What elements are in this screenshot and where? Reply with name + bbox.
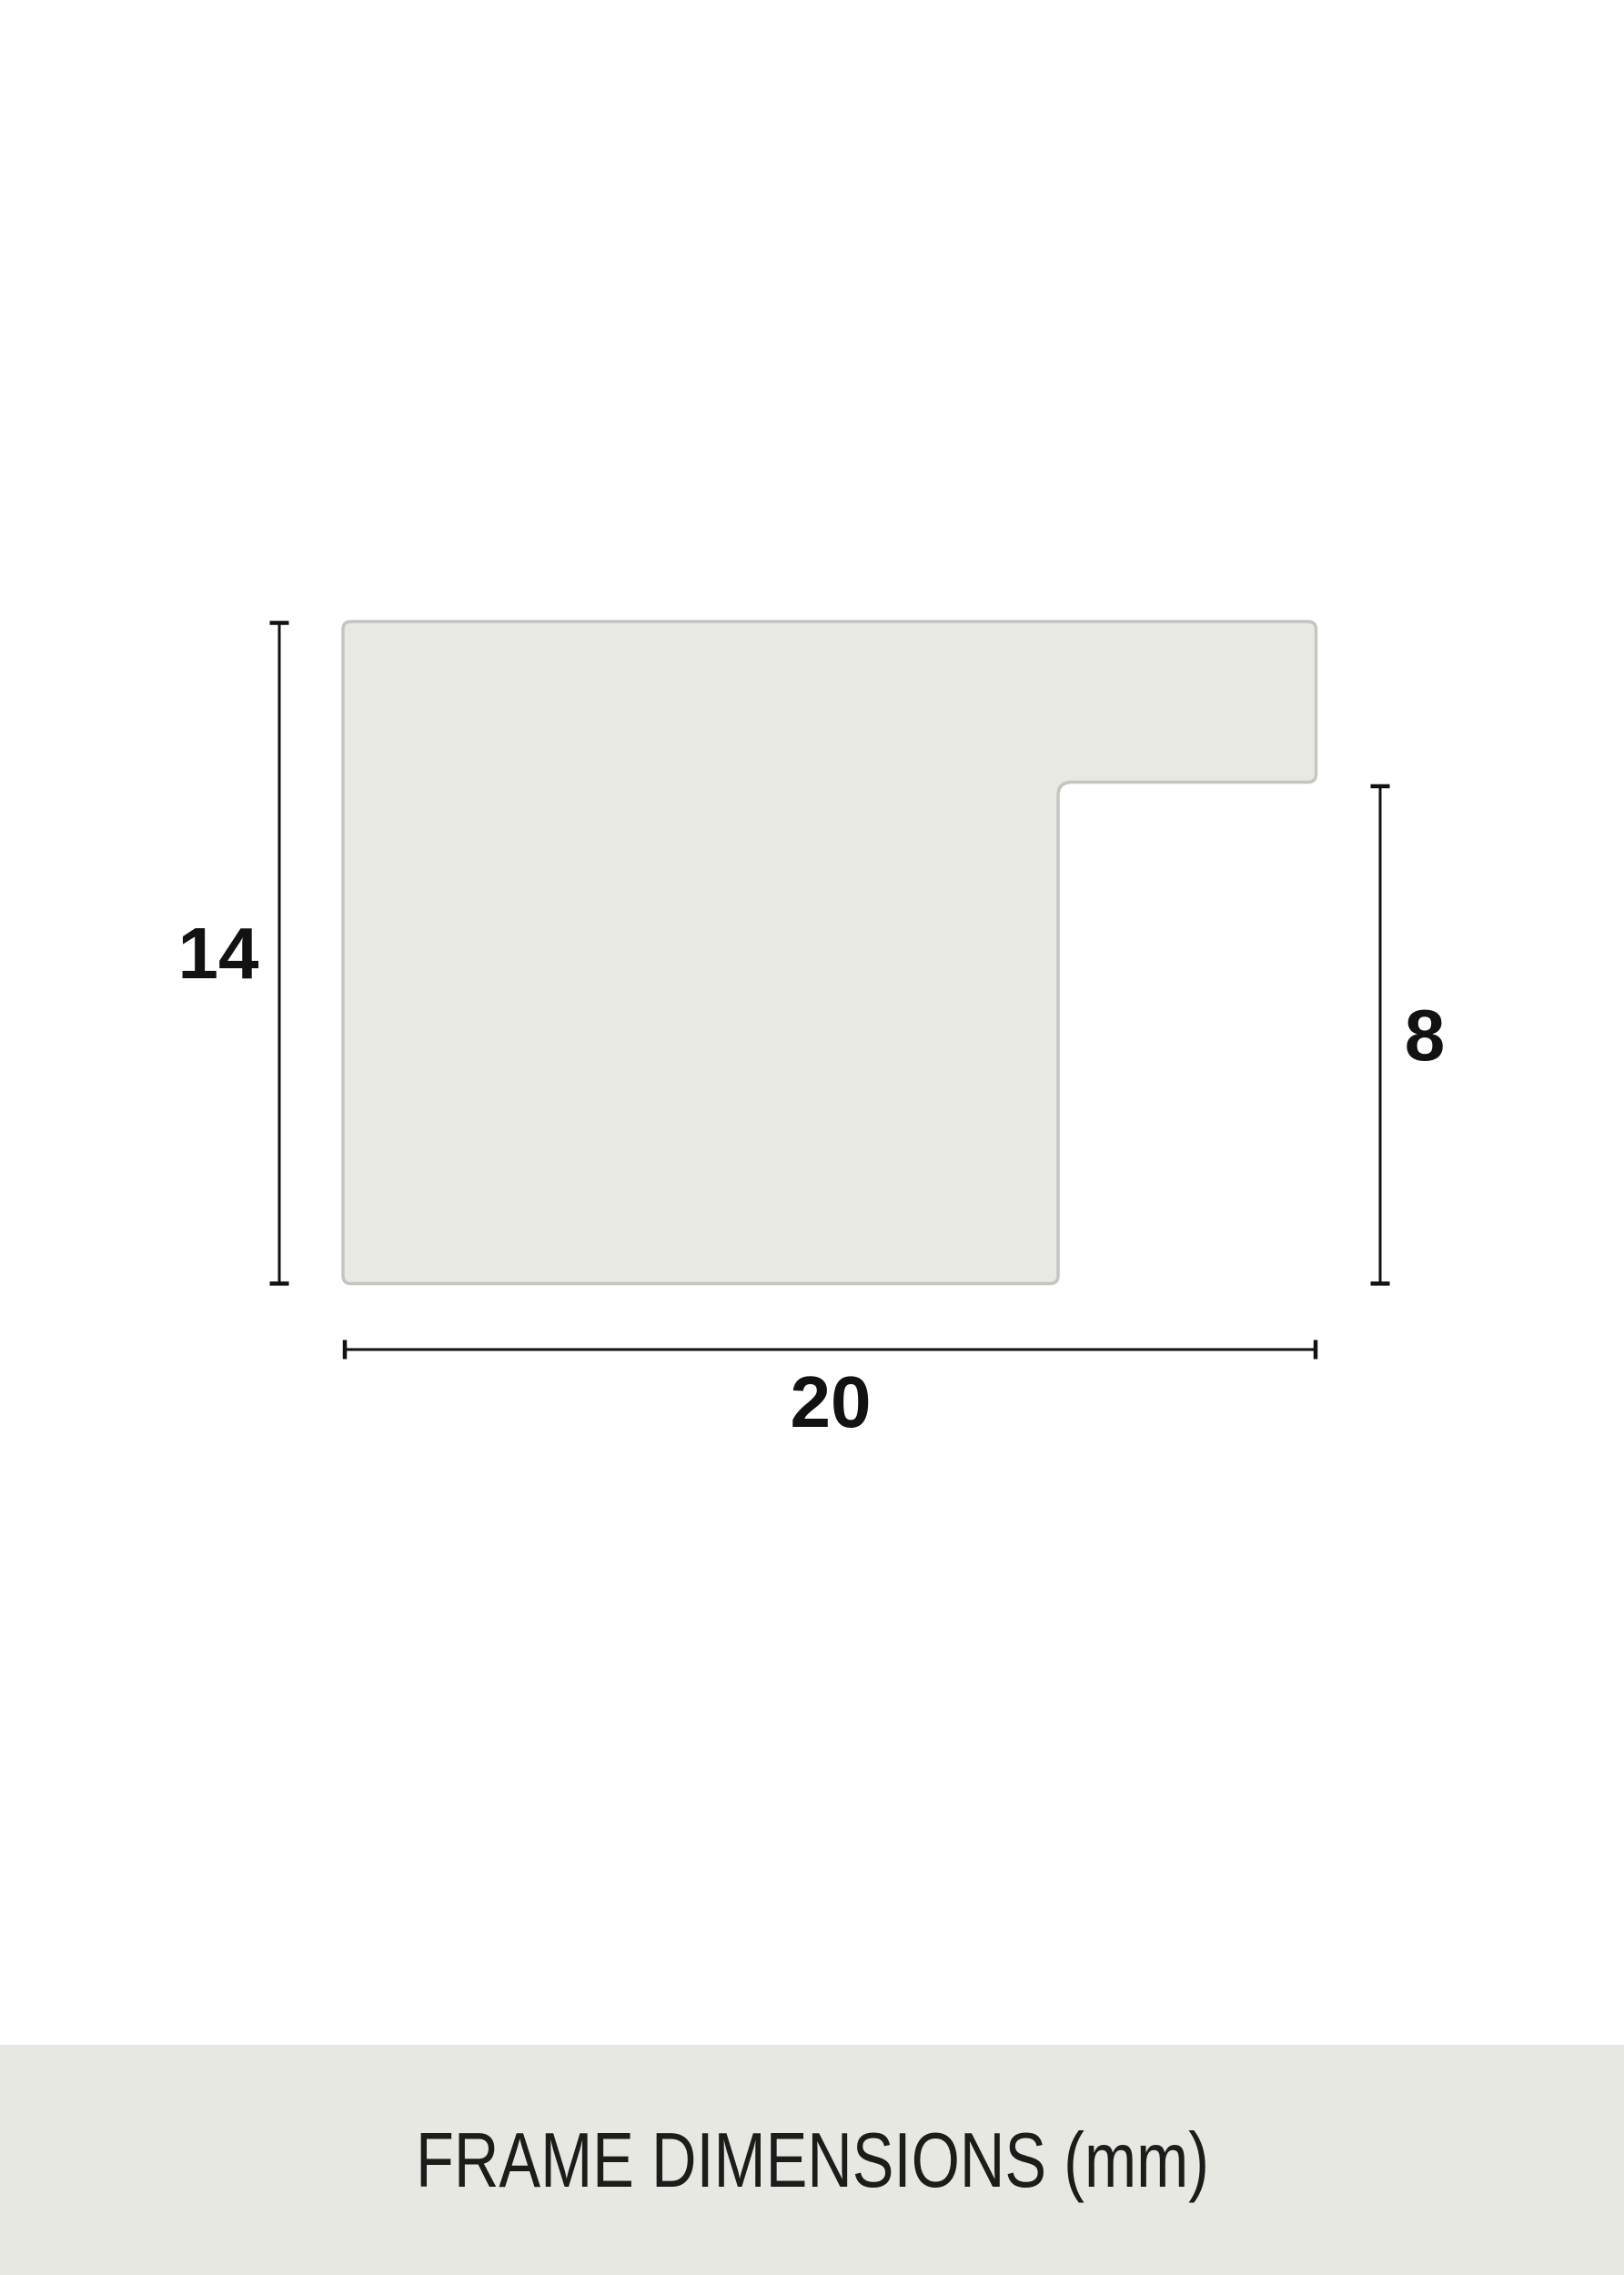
- svg-text:20: 20: [791, 1361, 872, 1442]
- svg-text:FRAME DIMENSIONS (mm): FRAME DIMENSIONS (mm): [416, 2118, 1209, 2204]
- svg-text:14: 14: [178, 913, 259, 994]
- svg-text:8: 8: [1405, 995, 1446, 1076]
